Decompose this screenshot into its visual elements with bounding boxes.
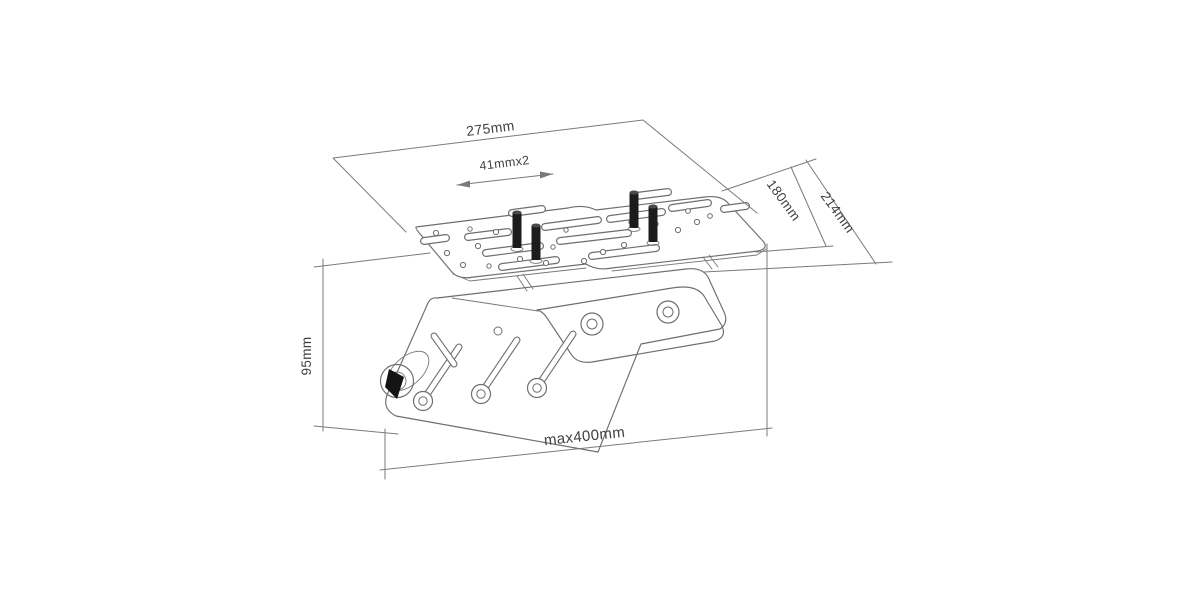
- dimension-slot-pitch: 41mmx2: [457, 153, 553, 187]
- dim-label-width: 275mm: [465, 117, 515, 139]
- mount-bracket: [380, 255, 726, 452]
- ceiling-plate: [416, 191, 766, 282]
- arm-slots: [428, 334, 573, 393]
- dim-label-slot-pitch: 41mmx2: [479, 153, 531, 173]
- dimension-max-extension: max400mm: [380, 244, 772, 479]
- dim-label-drop-height: 95mm: [299, 336, 314, 375]
- technical-drawing-canvas: 275mm 41mmx2 180mm 214mm 95mm max400mm: [0, 0, 1200, 600]
- dim-label-plate-depth: 180mm: [764, 177, 804, 224]
- bracket-fold-line: [452, 298, 538, 311]
- dim-label-overall-depth: 214mm: [818, 189, 858, 236]
- bracket-drawing-svg: 275mm 41mmx2 180mm 214mm 95mm max400mm: [0, 0, 1200, 600]
